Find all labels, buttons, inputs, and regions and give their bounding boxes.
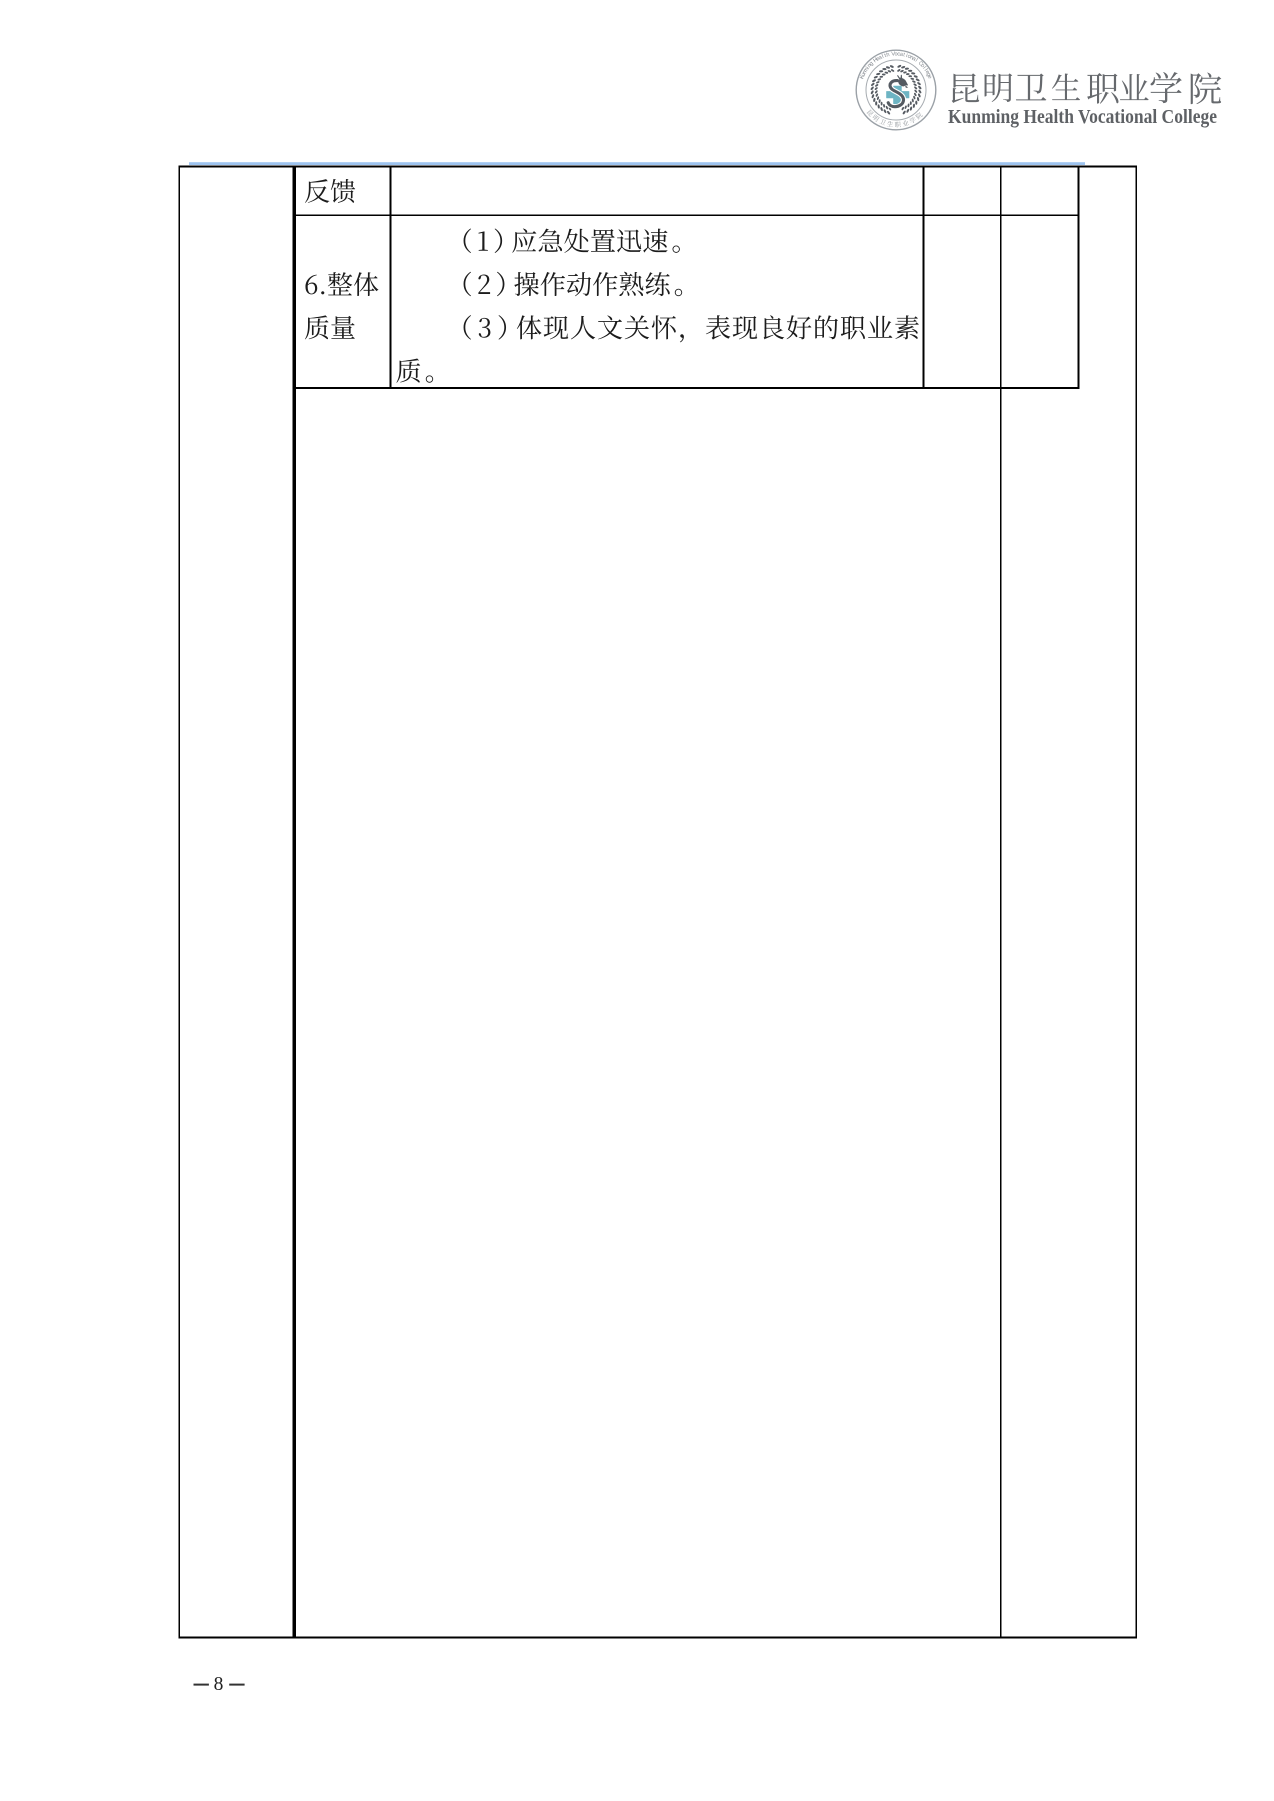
svg-text:h: h	[886, 52, 890, 59]
svg-text:Kunming Health Vocational Coll: Kunming Health Vocational College	[948, 107, 1217, 128]
svg-text:8: 8	[214, 1674, 224, 1695]
svg-text:e: e	[926, 75, 933, 80]
